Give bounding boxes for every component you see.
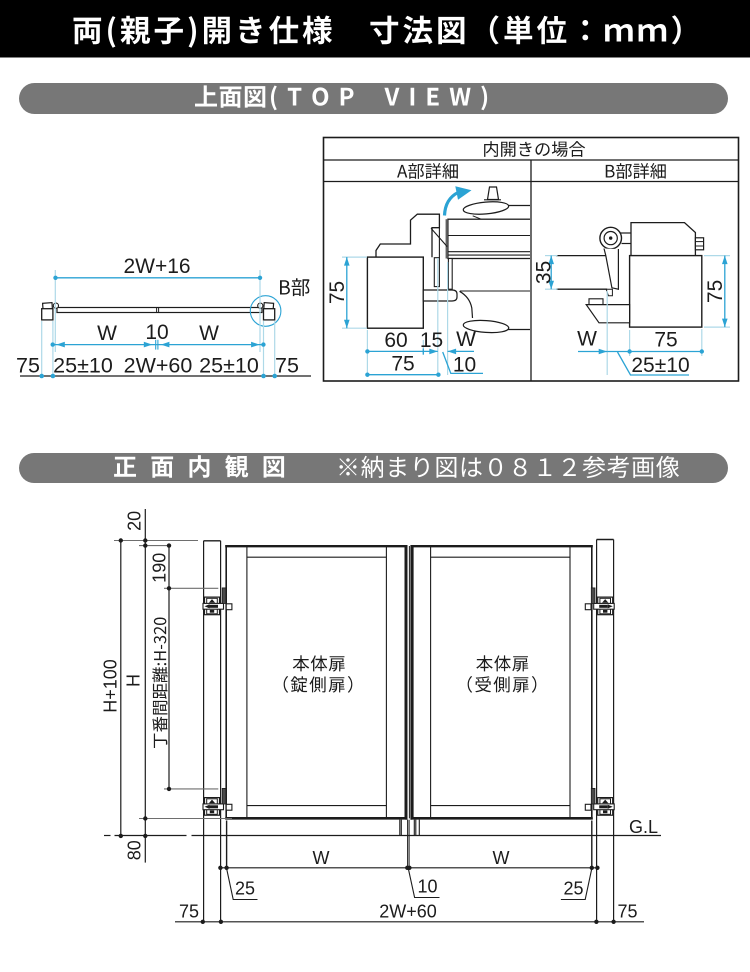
svg-text:25: 25 xyxy=(235,879,255,899)
svg-text:2W+60: 2W+60 xyxy=(379,902,437,922)
svg-text:60: 60 xyxy=(384,329,407,352)
svg-text:10: 10 xyxy=(417,877,437,897)
svg-text:2W+60: 2W+60 xyxy=(124,354,193,378)
svg-text:G.L: G.L xyxy=(629,817,658,837)
svg-text:75: 75 xyxy=(704,280,727,303)
svg-text:75: 75 xyxy=(326,281,349,304)
svg-text:W: W xyxy=(199,322,219,345)
svg-text:75: 75 xyxy=(617,902,637,922)
svg-text:H+100: H+100 xyxy=(101,659,121,713)
svg-text:25±10: 25±10 xyxy=(631,354,689,377)
svg-text:15: 15 xyxy=(420,329,443,352)
svg-text:35: 35 xyxy=(533,261,556,284)
svg-text:75: 75 xyxy=(275,354,299,378)
svg-text:75: 75 xyxy=(16,354,40,378)
svg-text:10: 10 xyxy=(453,354,476,377)
svg-text:W: W xyxy=(493,848,510,868)
svg-text:10: 10 xyxy=(145,321,168,344)
svg-text:W: W xyxy=(456,328,476,351)
svg-text:190: 190 xyxy=(150,553,170,583)
svg-text:75: 75 xyxy=(654,329,677,352)
svg-text:75: 75 xyxy=(179,902,199,922)
svg-text:25: 25 xyxy=(563,879,583,899)
svg-text:W: W xyxy=(97,322,117,345)
svg-text:20: 20 xyxy=(125,511,145,531)
svg-text:25±10: 25±10 xyxy=(199,354,259,378)
svg-text:75: 75 xyxy=(391,353,414,376)
svg-text:H: H xyxy=(124,674,144,687)
svg-text:W: W xyxy=(313,848,330,868)
svg-text:25±10: 25±10 xyxy=(53,354,113,378)
svg-text:80: 80 xyxy=(125,840,145,860)
svg-text:W: W xyxy=(577,328,597,351)
svg-text:2W+16: 2W+16 xyxy=(123,255,190,278)
